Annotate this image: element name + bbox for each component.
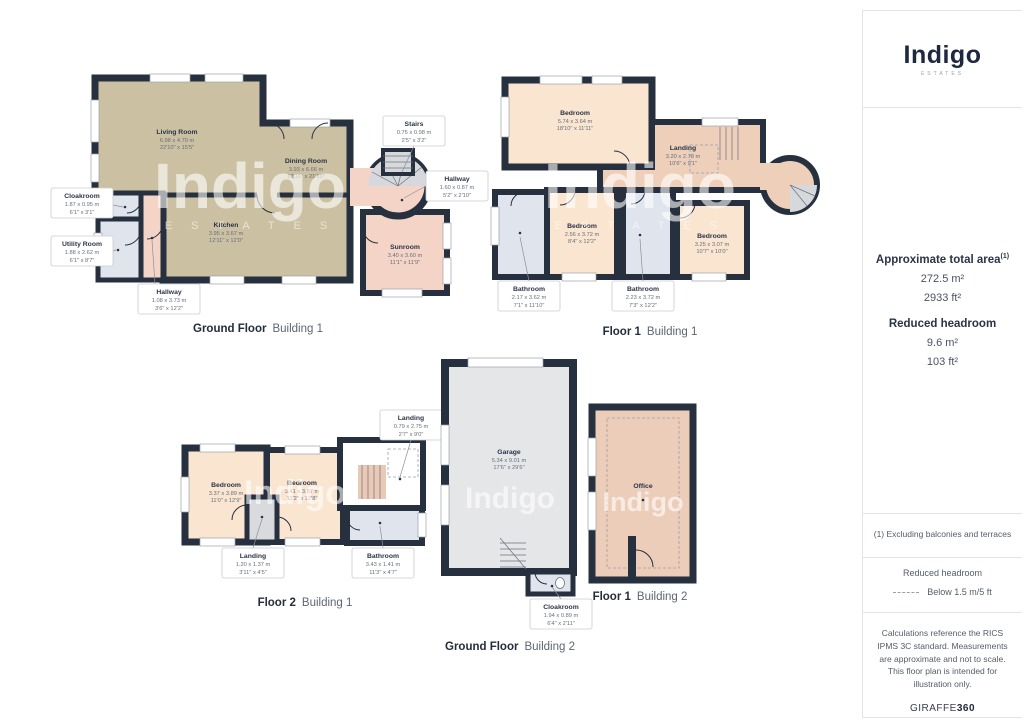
room-bathroom-2 — [623, 190, 673, 277]
svg-text:3.41 x 3.87 m: 3.41 x 3.87 m — [285, 489, 320, 495]
svg-text:17'6" x 29'6": 17'6" x 29'6" — [493, 465, 524, 471]
svg-text:5.34 x 9.01 m: 5.34 x 9.01 m — [492, 458, 527, 464]
label-dining-room: Dining Room 3.93 x 6.66 m 12'10" x 21'10… — [285, 158, 327, 180]
svg-text:Stairs: Stairs — [405, 121, 424, 128]
label-living-room: Living Room 6.98 x 4.70 m 22'10" x 15'5" — [156, 129, 197, 151]
svg-text:1.08 x 3.73 m: 1.08 x 3.73 m — [152, 298, 187, 304]
label-box-utility: Utility Room 1.88 x 2.62 m 6'1" x 8'7" — [51, 236, 113, 266]
plan-floor-2-building-1: Bedroom 3.37 x 3.89 m 11'0" x 12'9" Bedr… — [180, 405, 430, 595]
svg-text:3'11" x 4'5": 3'11" x 4'5" — [239, 570, 267, 576]
svg-text:11'2" x 12'8": 11'2" x 12'8" — [287, 496, 318, 502]
svg-text:6'4" x 2'11": 6'4" x 2'11" — [547, 621, 575, 627]
window — [91, 100, 99, 142]
window — [443, 258, 451, 284]
label-kitchen: Kitchen 3.95 x 3.67 m 12'11" x 12'0" — [209, 222, 244, 244]
svg-text:Landing: Landing — [670, 145, 696, 152]
landing-connector — [760, 163, 780, 190]
window — [588, 492, 596, 530]
caption-ground-floor-building-1: Ground FloorBuilding 1 — [158, 323, 358, 335]
svg-text:12'11" x 12'0": 12'11" x 12'0" — [209, 238, 243, 244]
svg-text:Bathroom: Bathroom — [367, 553, 399, 560]
dashed-line-icon — [893, 592, 919, 593]
window — [282, 276, 316, 284]
window — [540, 76, 582, 84]
label-box-stairs: Stairs 0.75 x 0.98 m 2'5" x 3'2" — [383, 116, 445, 146]
stairs-wedge — [790, 185, 817, 212]
label-box-hallway-bottom: Hallway 1.08 x 3.73 m 3'6" x 12'2" — [138, 284, 200, 314]
window — [205, 74, 243, 82]
label-box-bathroom-1: Bathroom 2.17 x 3.62 m 7'1" x 11'10" — [498, 281, 560, 311]
brand-logo: Indigo ESTATES — [863, 11, 1022, 108]
wall-stub — [628, 536, 636, 580]
svg-text:Bedroom: Bedroom — [697, 233, 727, 240]
label-bedroom-1: Bedroom 5.74 x 3.64 m 18'10" x 11'11" — [557, 110, 594, 132]
svg-text:7'3" x 12'2": 7'3" x 12'2" — [629, 303, 657, 309]
window — [562, 273, 596, 281]
svg-text:18'10" x 11'11": 18'10" x 11'11" — [557, 126, 594, 132]
svg-text:Bedroom: Bedroom — [287, 480, 317, 487]
toilet-icon — [556, 578, 565, 589]
info-sidebar: Indigo ESTATES Approximate total area(1)… — [862, 10, 1022, 718]
label-bedroom-3: Bedroom 3.25 x 3.07 m 10'7" x 10'0" — [695, 233, 730, 255]
svg-text:6'1" x 8'7": 6'1" x 8'7" — [70, 258, 95, 264]
plan-floor-1-building-2: Office — [585, 400, 700, 590]
label-bedroom-2: Bedroom 3.41 x 3.87 m 11'2" x 12'8" — [285, 480, 320, 502]
svg-text:3.25 x 3.07 m: 3.25 x 3.07 m — [695, 242, 730, 248]
plan-ground-floor-building-1: Living Room 6.98 x 4.70 m 22'10" x 15'5"… — [50, 68, 500, 320]
svg-text:10'7" x 10'0": 10'7" x 10'0" — [696, 249, 727, 255]
svg-text:1.87 x 0.95 m: 1.87 x 0.95 m — [65, 202, 100, 208]
svg-text:2'5" x 3'2": 2'5" x 3'2" — [402, 138, 427, 144]
floorplan-page: Living Room 6.98 x 4.70 m 22'10" x 15'5"… — [0, 0, 1024, 724]
svg-text:5'2" x 2'10": 5'2" x 2'10" — [443, 193, 471, 199]
svg-text:Utility Room: Utility Room — [62, 241, 102, 248]
total-area-title: Approximate total area(1) — [863, 253, 1022, 266]
svg-text:Bathroom: Bathroom — [513, 286, 545, 293]
headroom-legend: Reduced headroom Below 1.5 m/5 ft — [863, 558, 1022, 613]
svg-text:3'6" x 12'2": 3'6" x 12'2" — [155, 306, 183, 312]
svg-text:2.17 x 3.62 m: 2.17 x 3.62 m — [512, 295, 547, 301]
window — [181, 477, 189, 512]
svg-text:Cloakroom: Cloakroom — [64, 193, 100, 200]
window — [150, 74, 190, 82]
svg-text:2'7" x 9'0": 2'7" x 9'0" — [399, 432, 424, 438]
room-hallway — [141, 193, 163, 280]
label-bedroom-2: Bedroom 2.56 x 3.72 m 8'4" x 12'2" — [565, 223, 600, 245]
window — [210, 276, 244, 284]
svg-text:6.98 x 4.70 m: 6.98 x 4.70 m — [160, 138, 195, 144]
svg-text:Bedroom: Bedroom — [560, 110, 590, 117]
legend-title: Reduced headroom — [863, 568, 1022, 578]
total-area-ft2: 2933 ft² — [863, 292, 1022, 304]
room-bathroom-1 — [495, 192, 547, 277]
svg-text:1.88 x 2.62 m: 1.88 x 2.62 m — [65, 250, 100, 256]
reduced-headroom-title: Reduced headroom — [863, 318, 1022, 330]
svg-text:1.20 x 1.37 m: 1.20 x 1.37 m — [236, 562, 271, 568]
svg-text:11'1" x 11'9": 11'1" x 11'9" — [390, 260, 420, 266]
label-office: Office — [633, 483, 652, 490]
window — [443, 223, 451, 249]
window — [501, 97, 509, 137]
svg-text:Dining Room: Dining Room — [285, 158, 327, 165]
total-area-m2: 272.5 m² — [863, 273, 1022, 285]
svg-text:Bedroom: Bedroom — [211, 482, 241, 489]
svg-text:Hallway: Hallway — [156, 289, 182, 296]
svg-text:Landing: Landing — [398, 415, 424, 422]
window — [285, 538, 320, 546]
window — [382, 289, 422, 297]
svg-text:11'0" x 12'9": 11'0" x 12'9" — [211, 498, 242, 504]
label-box-landing: Landing 1.20 x 1.37 m 3'11" x 4'5" — [222, 548, 284, 578]
svg-text:Sunroom: Sunroom — [390, 244, 420, 251]
reduced-headroom-m2: 9.6 m² — [863, 337, 1022, 349]
svg-text:3.95 x 3.67 m: 3.95 x 3.67 m — [209, 231, 244, 237]
svg-text:7'1" x 11'10": 7'1" x 11'10" — [514, 303, 545, 309]
svg-text:8'4" x 12'2": 8'4" x 12'2" — [568, 239, 596, 245]
giraffe360-brand: GIRAFFE360 — [875, 701, 1010, 716]
svg-text:Kitchen: Kitchen — [214, 222, 239, 229]
svg-text:Landing: Landing — [240, 553, 266, 560]
room-bathroom — [347, 508, 422, 543]
svg-text:Bedroom: Bedroom — [567, 223, 597, 230]
svg-text:2.56 x 3.72 m: 2.56 x 3.72 m — [565, 232, 600, 238]
indigo-logo: Indigo — [904, 41, 982, 70]
svg-text:Office: Office — [633, 483, 652, 490]
indigo-logo-subtext: ESTATES — [921, 71, 964, 77]
legend-label: Below 1.5 m/5 ft — [927, 587, 992, 597]
svg-text:3.43 x 1.41 m: 3.43 x 1.41 m — [366, 562, 401, 568]
svg-text:12'10" x 21'10": 12'10" x 21'10" — [287, 174, 325, 180]
svg-text:5.74 x 3.64 m: 5.74 x 3.64 m — [558, 119, 593, 125]
window — [702, 118, 738, 126]
window — [200, 444, 235, 452]
window — [200, 538, 235, 546]
svg-text:Bathroom: Bathroom — [627, 286, 659, 293]
label-bedroom-1: Bedroom 3.37 x 3.89 m 11'0" x 12'9" — [209, 482, 244, 504]
label-box-cloakroom: Cloakroom 1.87 x 0.95 m 6'1" x 3'1" — [51, 188, 113, 218]
label-box-landing-top: Landing 0.79 x 2.75 m 2'7" x 9'0" — [380, 410, 442, 440]
svg-text:10'6" x 9'1": 10'6" x 9'1" — [669, 161, 697, 167]
disclaimer-text: Calculations reference the RICS IPMS 3C … — [875, 627, 1010, 691]
label-box-bathroom: Bathroom 3.43 x 1.41 m 11'3" x 4'7" — [352, 548, 414, 578]
svg-text:Living Room: Living Room — [156, 129, 197, 136]
svg-text:11'3" x 4'7": 11'3" x 4'7" — [369, 570, 397, 576]
svg-text:6'1" x 3'1": 6'1" x 3'1" — [70, 210, 95, 216]
svg-text:1.60 x 0.87 m: 1.60 x 0.87 m — [440, 185, 475, 191]
svg-text:Garage: Garage — [497, 449, 521, 456]
svg-text:2.23 x 3.72 m: 2.23 x 3.72 m — [626, 295, 661, 301]
window — [285, 446, 320, 454]
window — [592, 76, 622, 84]
label-box-hallway-right: Hallway 1.60 x 0.87 m 5'2" x 2'10" — [426, 171, 488, 201]
svg-text:22'10" x 15'5": 22'10" x 15'5" — [160, 145, 194, 151]
window — [441, 485, 449, 525]
svg-text:3.93 x 6.66 m: 3.93 x 6.66 m — [289, 167, 324, 173]
window — [91, 154, 99, 182]
svg-text:1.94 x 0.89 m: 1.94 x 0.89 m — [544, 613, 579, 619]
window — [418, 513, 426, 537]
svg-text:3.20 x 2.78 m: 3.20 x 2.78 m — [666, 154, 701, 160]
area-footnote: (1) Excluding balconies and terraces — [863, 514, 1022, 558]
caption-floor-1-building-2: Floor 1Building 2 — [540, 591, 740, 603]
svg-text:Hallway: Hallway — [444, 176, 470, 183]
label-box-cloakroom: Cloakroom 1.94 x 0.89 m 6'4" x 2'11" — [530, 599, 592, 629]
label-box-bathroom-2: Bathroom 2.23 x 3.72 m 7'3" x 12'2" — [612, 281, 674, 311]
svg-text:3.37 x 3.89 m: 3.37 x 3.89 m — [209, 491, 244, 497]
svg-text:0.79 x 2.75 m: 0.79 x 2.75 m — [394, 424, 429, 430]
window — [441, 425, 449, 465]
window — [692, 273, 726, 281]
svg-text:3.40 x 3.60 m: 3.40 x 3.60 m — [388, 253, 423, 259]
caption-floor-1-building-1: Floor 1Building 1 — [550, 326, 750, 338]
svg-text:Cloakroom: Cloakroom — [543, 604, 579, 611]
caption-floor-2-building-1: Floor 2Building 1 — [205, 597, 405, 609]
garage-door — [468, 358, 543, 367]
reduced-headroom-ft2: 103 ft² — [863, 356, 1022, 368]
label-sunroom: Sunroom 3.40 x 3.60 m 11'1" x 11'9" — [388, 244, 423, 266]
window — [491, 207, 499, 245]
area-summary: Approximate total area(1) 272.5 m² 2933 … — [863, 108, 1022, 514]
svg-text:0.75 x 0.98 m: 0.75 x 0.98 m — [397, 130, 432, 136]
label-landing: Landing 3.20 x 2.78 m 10'6" x 9'1" — [666, 145, 701, 167]
plan-floor-1-building-1: Bedroom 5.74 x 3.64 m 18'10" x 11'11" La… — [480, 65, 825, 320]
room-bedroom-3 — [677, 203, 747, 277]
window — [588, 438, 596, 476]
caption-ground-floor-building-2: Ground FloorBuilding 2 — [410, 641, 610, 653]
disclaimer: Calculations reference the RICS IPMS 3C … — [863, 613, 1022, 717]
